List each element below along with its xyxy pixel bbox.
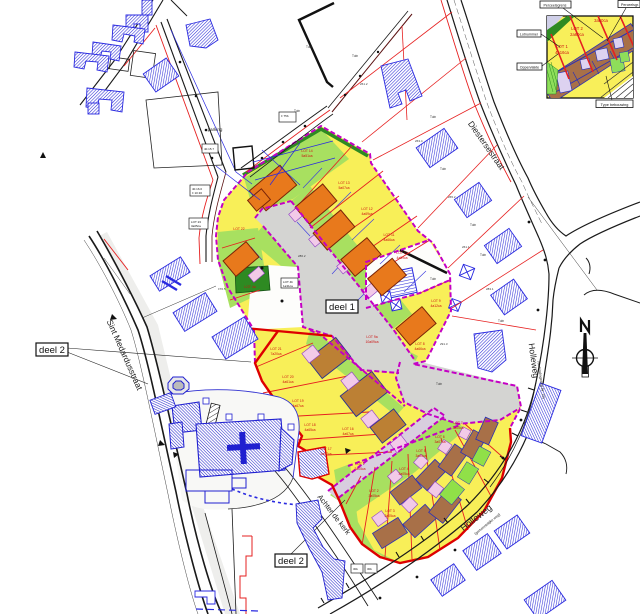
svg-text:3a60ca: 3a60ca: [594, 18, 608, 23]
svg-text:7a20ca: 7a20ca: [270, 352, 281, 356]
svg-text:4a67ca: 4a67ca: [292, 404, 303, 408]
svg-text:LOT 21: LOT 21: [270, 347, 281, 351]
svg-text:4a12ca: 4a12ca: [430, 304, 441, 308]
svg-text:LOT 2: LOT 2: [571, 26, 583, 31]
svg-text:3a05ca: 3a05ca: [398, 472, 409, 476]
svg-text:± 10.30: ± 10.30: [192, 191, 202, 195]
svg-text:1a31ca: 1a31ca: [283, 284, 293, 288]
svg-text:3a05ca: 3a05ca: [384, 514, 395, 518]
svg-text:LOT 6: LOT 6: [435, 435, 444, 439]
svg-text:40.15.7: 40.15.7: [204, 147, 214, 151]
svg-text:4a66ca: 4a66ca: [414, 347, 425, 351]
svg-text:Tuin: Tuin: [430, 277, 436, 281]
svg-text:261.2: 261.2: [360, 82, 368, 86]
svg-text:3a05ca: 3a05ca: [368, 494, 379, 498]
svg-text:LOT 17: LOT 17: [320, 447, 331, 451]
svg-text:Tuin: Tuin: [436, 382, 442, 386]
svg-text:Tuin: Tuin: [480, 253, 486, 257]
svg-text:4a65ca: 4a65ca: [304, 428, 315, 432]
svg-text:263.4: 263.4: [415, 139, 423, 143]
svg-text:Tuin: Tuin: [498, 319, 504, 323]
svg-text:10a09ca: 10a09ca: [365, 340, 378, 344]
svg-text:5a07ca: 5a07ca: [338, 186, 349, 190]
svg-text:283.1: 283.1: [486, 287, 494, 291]
svg-text:4a69ca: 4a69ca: [361, 212, 372, 216]
svg-text:LOT 1: LOT 1: [355, 462, 364, 466]
svg-text:LOT 4a: LOT 4a: [244, 285, 255, 289]
svg-text:30k: 30k: [353, 567, 358, 571]
svg-text:LOT 22: LOT 22: [233, 227, 244, 231]
svg-text:LOT 11: LOT 11: [384, 233, 395, 237]
svg-text:Tuin: Tuin: [430, 115, 436, 119]
svg-text:291.3: 291.3: [440, 342, 448, 346]
svg-text:3a05ca: 3a05ca: [452, 426, 463, 430]
svg-text:LOT 9: LOT 9: [431, 299, 440, 303]
svg-text:Tuin: Tuin: [440, 167, 446, 171]
svg-text:LOT 14: LOT 14: [301, 149, 312, 153]
svg-text:Tuin: Tuin: [470, 223, 476, 227]
svg-text:LOT 7: LOT 7: [453, 421, 462, 425]
svg-text:deel 1: deel 1: [329, 302, 355, 313]
svg-text:LOT 3: LOT 3: [385, 509, 394, 513]
svg-text:3a05ca: 3a05ca: [191, 224, 201, 228]
svg-text:± 75b: ± 75b: [281, 114, 289, 118]
svg-text:4a67ca: 4a67ca: [342, 432, 353, 436]
svg-text:265.2: 265.2: [448, 195, 456, 199]
svg-text:deel 2: deel 2: [278, 556, 304, 567]
svg-text:Perceelsgr.: Perceelsgr.: [621, 3, 639, 7]
svg-text:LOT 1: LOT 1: [556, 44, 568, 49]
svg-text:Oppervlakte: Oppervlakte: [520, 65, 539, 69]
svg-text:deel 2: deel 2: [39, 345, 65, 356]
svg-text:5a07ca: 5a07ca: [320, 452, 331, 456]
svg-text:LOT 12: LOT 12: [361, 207, 372, 211]
svg-text:LOT 9a: LOT 9a: [366, 335, 377, 339]
svg-text:LOT 4: LOT 4: [399, 467, 408, 471]
svg-text:261.1: 261.1: [462, 245, 470, 249]
svg-text:3a07ca: 3a07ca: [434, 440, 445, 444]
svg-text:286.2: 286.2: [298, 254, 306, 258]
svg-text:LOT 19: LOT 19: [292, 399, 303, 403]
svg-text:Type bebouwing: Type bebouwing: [601, 103, 629, 107]
svg-text:30k: 30k: [367, 567, 372, 571]
svg-text:LOT 18: LOT 18: [304, 423, 315, 427]
svg-text:LOT 13: LOT 13: [338, 181, 349, 185]
svg-text:±76.5: ±76.5: [218, 287, 226, 291]
svg-text:LOT 10: LOT 10: [396, 251, 407, 255]
svg-text:LOT 20: LOT 20: [282, 375, 293, 379]
svg-text:Lotnummer: Lotnummer: [520, 32, 539, 36]
svg-text:LOT 16: LOT 16: [342, 427, 353, 431]
svg-text:4a61ca: 4a61ca: [282, 380, 293, 384]
svg-text:LOT 5: LOT 5: [416, 449, 425, 453]
svg-text:parking: parking: [208, 127, 223, 132]
svg-text:5a51ca: 5a51ca: [301, 154, 312, 158]
svg-text:LOT 8: LOT 8: [415, 342, 424, 346]
svg-text:Tuin: Tuin: [306, 45, 312, 49]
svg-text:3a05ca: 3a05ca: [415, 454, 426, 458]
svg-text:4a66ca: 4a66ca: [383, 238, 394, 242]
svg-text:LOT 2: LOT 2: [369, 489, 378, 493]
svg-text:3a05ca: 3a05ca: [354, 467, 365, 471]
svg-text:Tuin: Tuin: [352, 54, 358, 58]
svg-text:2a60ca: 2a60ca: [570, 32, 584, 37]
svg-text:Perceelsgrens: Perceelsgrens: [544, 3, 567, 7]
svg-text:4a59ca: 4a59ca: [396, 256, 407, 260]
